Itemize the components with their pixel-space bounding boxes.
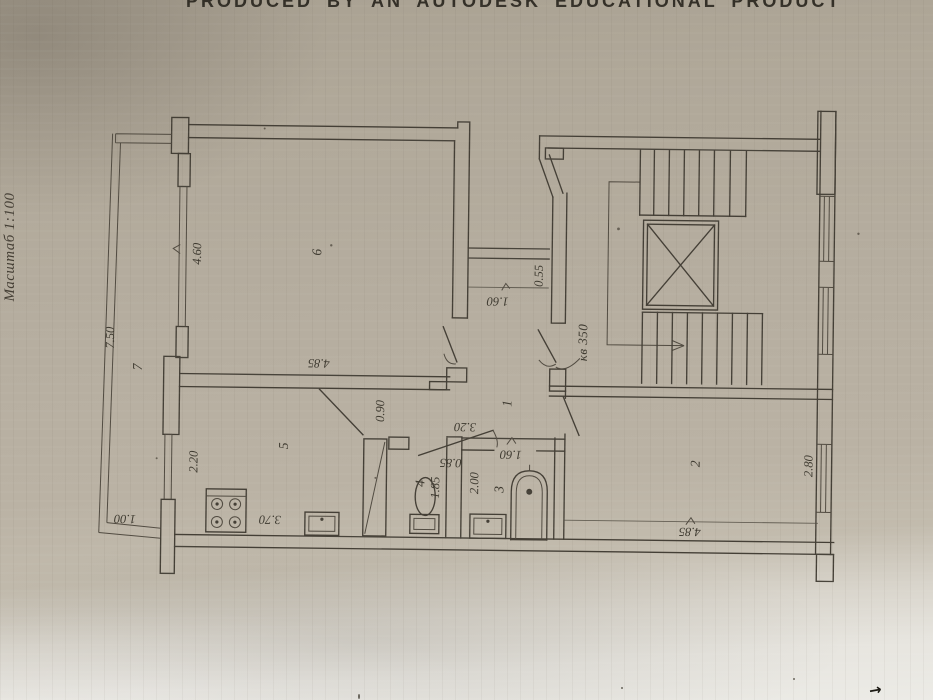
living-room-window — [816, 444, 832, 512]
room-label-wc: 4 — [412, 480, 427, 487]
paper-speck — [621, 687, 623, 689]
room-label-hall: 1 — [499, 400, 514, 407]
stairs — [607, 150, 765, 385]
dim-2-20: 2.20 — [186, 450, 200, 473]
dim-0-85: 0.85 — [440, 456, 462, 470]
room-label-kitchen: 5 — [276, 442, 291, 449]
dim-1-85: 1.85 — [428, 477, 442, 499]
dim-4-60: 4.60 — [190, 242, 204, 265]
kitchen-stove — [206, 489, 247, 532]
kitchen-sink — [305, 512, 339, 535]
dimension-marks — [170, 244, 821, 526]
dim-0-55: 0.55 — [532, 265, 546, 287]
room-label-balcony: 7 — [130, 362, 145, 370]
floor-plan-drawing: 7.50 7 4.60 6 4.85 2.20 5 3.70 1.00 0.90… — [0, 0, 933, 700]
stairwell-window-1 — [819, 196, 835, 261]
kitchen-door-leaf — [319, 389, 364, 435]
kitchen-window — [164, 434, 172, 499]
bathtub — [511, 465, 548, 540]
dim-0-90: 0.90 — [373, 399, 387, 422]
dim-4-85-bedroom: 4.85 — [308, 356, 330, 370]
dim-1-60-bath: 1.60 — [499, 448, 522, 462]
dim-2-00: 2.00 — [467, 471, 481, 494]
room-label-bedroom: 6 — [309, 248, 324, 255]
entrance-door-leaf — [538, 330, 556, 362]
floor-plan-photo: PRODUCED BY AN AUTODESK EDUCATIONAL PROD… — [0, 0, 933, 700]
elevator-shaft — [643, 220, 719, 310]
dim-2-80: 2.80 — [801, 454, 815, 477]
apartment-walls — [98, 117, 839, 582]
dim-1-00: 1.00 — [113, 512, 136, 526]
dim-4-85-living: 4.85 — [679, 525, 701, 539]
apartment-doors — [319, 325, 581, 457]
paper-speck — [793, 678, 795, 680]
dim-1-60-vestibule: 1.60 — [486, 294, 509, 308]
dim-3-70: 3.70 — [258, 513, 282, 527]
paper-speck — [358, 694, 360, 699]
dim-3-20: 3.20 — [453, 420, 477, 434]
room-label-bathroom: 3 — [491, 486, 506, 494]
living-room-door-leaf — [563, 397, 579, 435]
apartment-number-label: кв 350 — [575, 324, 590, 362]
dim-7-50: 7.50 — [103, 326, 117, 349]
bedroom-window — [178, 186, 187, 326]
stairwell-window-2 — [818, 287, 834, 354]
room-label-living: 2 — [688, 460, 703, 467]
bathroom-sink — [470, 514, 506, 538]
